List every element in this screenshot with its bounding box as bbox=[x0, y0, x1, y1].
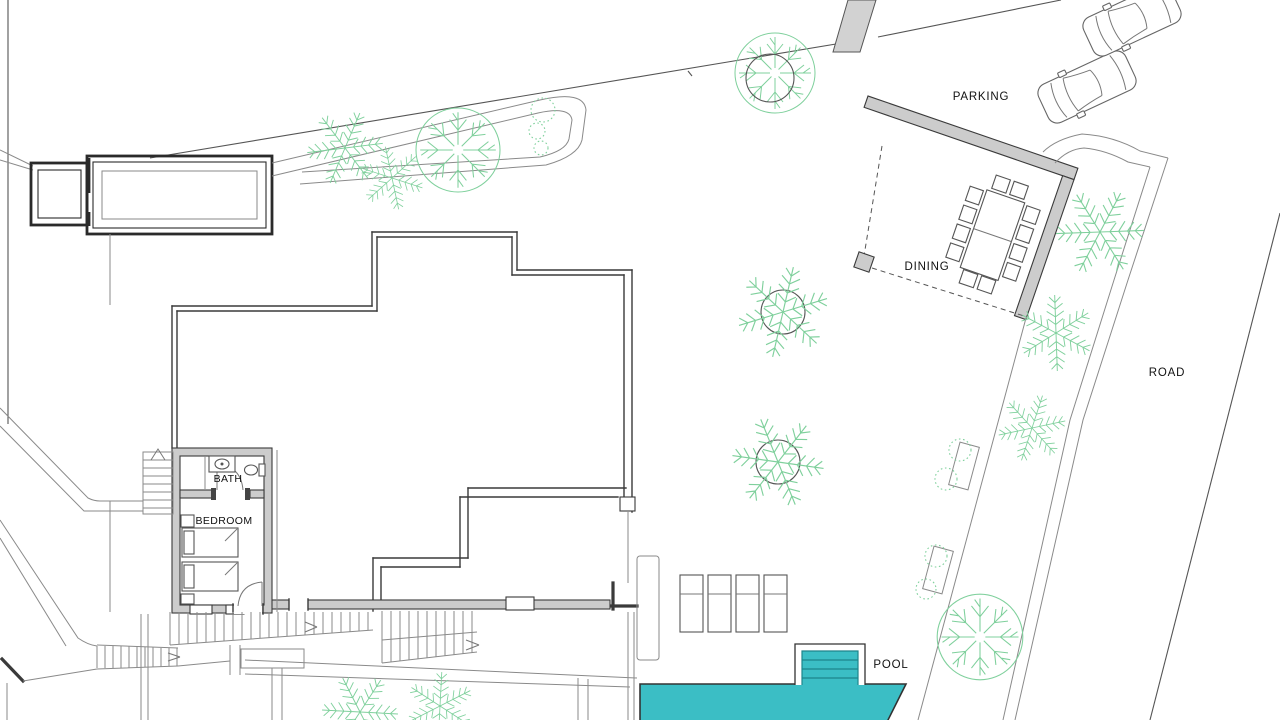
site-plan-svg: PARKING DINING ROAD POOL BATH BEDROOM bbox=[0, 0, 1280, 720]
bed bbox=[182, 562, 238, 591]
palm-tree-icon bbox=[1002, 279, 1111, 388]
road-label: ROAD bbox=[1149, 367, 1185, 379]
south-wall bbox=[262, 600, 610, 609]
planter-box bbox=[949, 442, 980, 490]
window bbox=[620, 497, 635, 511]
round-tree-icon bbox=[937, 594, 1023, 680]
shrub-icon bbox=[925, 545, 947, 567]
palm-tree-icon bbox=[298, 101, 392, 196]
pool-area bbox=[628, 556, 906, 720]
window bbox=[506, 597, 534, 610]
terrace-retaining-lines bbox=[0, 408, 637, 720]
lounge-chairs bbox=[680, 575, 787, 632]
round-tree-icon bbox=[416, 108, 500, 192]
entry-path bbox=[833, 0, 876, 52]
bath-label: BATH bbox=[214, 473, 243, 485]
nightstand bbox=[181, 594, 194, 604]
toilet-icon bbox=[245, 464, 266, 476]
palm-tree-icon bbox=[733, 261, 834, 363]
bed bbox=[182, 528, 238, 557]
site-plan-drawing: PARKING DINING ROAD POOL BATH BEDROOM bbox=[0, 0, 1280, 720]
shrub-icon bbox=[531, 98, 555, 122]
wall-opening bbox=[289, 599, 308, 610]
garage-building bbox=[31, 156, 272, 305]
pool-steps bbox=[802, 651, 858, 685]
garden-path-edge bbox=[272, 97, 586, 184]
sink-icon bbox=[209, 456, 235, 472]
window bbox=[190, 605, 212, 614]
dining-terrace bbox=[816, 96, 1078, 320]
swimming-pool bbox=[640, 684, 906, 720]
shrub-icon bbox=[529, 123, 545, 139]
nightstand bbox=[181, 515, 194, 527]
car-icon bbox=[1033, 44, 1141, 130]
shrub-icon bbox=[935, 468, 957, 490]
planter-box bbox=[241, 649, 304, 668]
pool-label: POOL bbox=[873, 659, 908, 671]
car-icon bbox=[1078, 0, 1186, 63]
wall-post bbox=[854, 252, 874, 272]
shrub-icon bbox=[534, 141, 548, 155]
stairs-icon bbox=[97, 449, 479, 669]
door-jamb bbox=[245, 488, 250, 500]
road-lines bbox=[918, 134, 1168, 720]
bedroom-label: BEDROOM bbox=[195, 515, 252, 527]
parking-label: PARKING bbox=[953, 91, 1010, 103]
palm-tree-icon bbox=[714, 398, 842, 526]
planter-box bbox=[637, 556, 659, 660]
door-jamb bbox=[211, 488, 216, 500]
dining-label: DINING bbox=[904, 261, 949, 273]
palm-tree-icon bbox=[309, 661, 411, 720]
planter-box bbox=[923, 546, 954, 594]
shrub-icon bbox=[916, 579, 936, 599]
